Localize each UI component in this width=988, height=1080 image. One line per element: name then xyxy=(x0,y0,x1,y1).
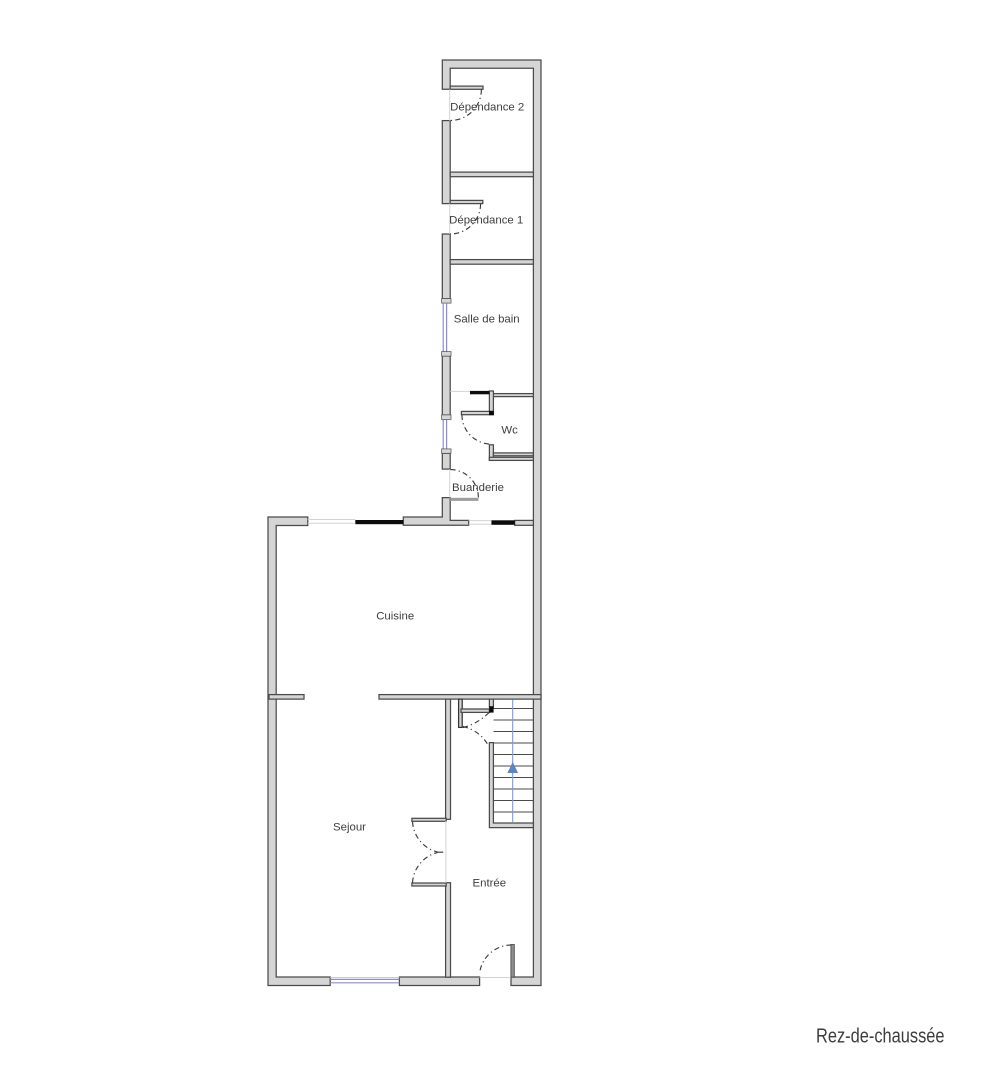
svg-text:Salle de bain: Salle de bain xyxy=(454,314,520,326)
svg-text:Rez-de-chaussée: Rez-de-chaussée xyxy=(816,1026,945,1048)
svg-text:Entrée: Entrée xyxy=(473,877,507,889)
svg-text:Dépendance 1: Dépendance 1 xyxy=(449,215,523,227)
svg-text:Dépendance 2: Dépendance 2 xyxy=(450,102,524,114)
svg-text:Cuisine: Cuisine xyxy=(376,611,414,623)
svg-text:Sejour: Sejour xyxy=(333,822,366,834)
svg-text:Wc: Wc xyxy=(501,425,518,437)
svg-text:Buanderie: Buanderie xyxy=(452,482,504,494)
